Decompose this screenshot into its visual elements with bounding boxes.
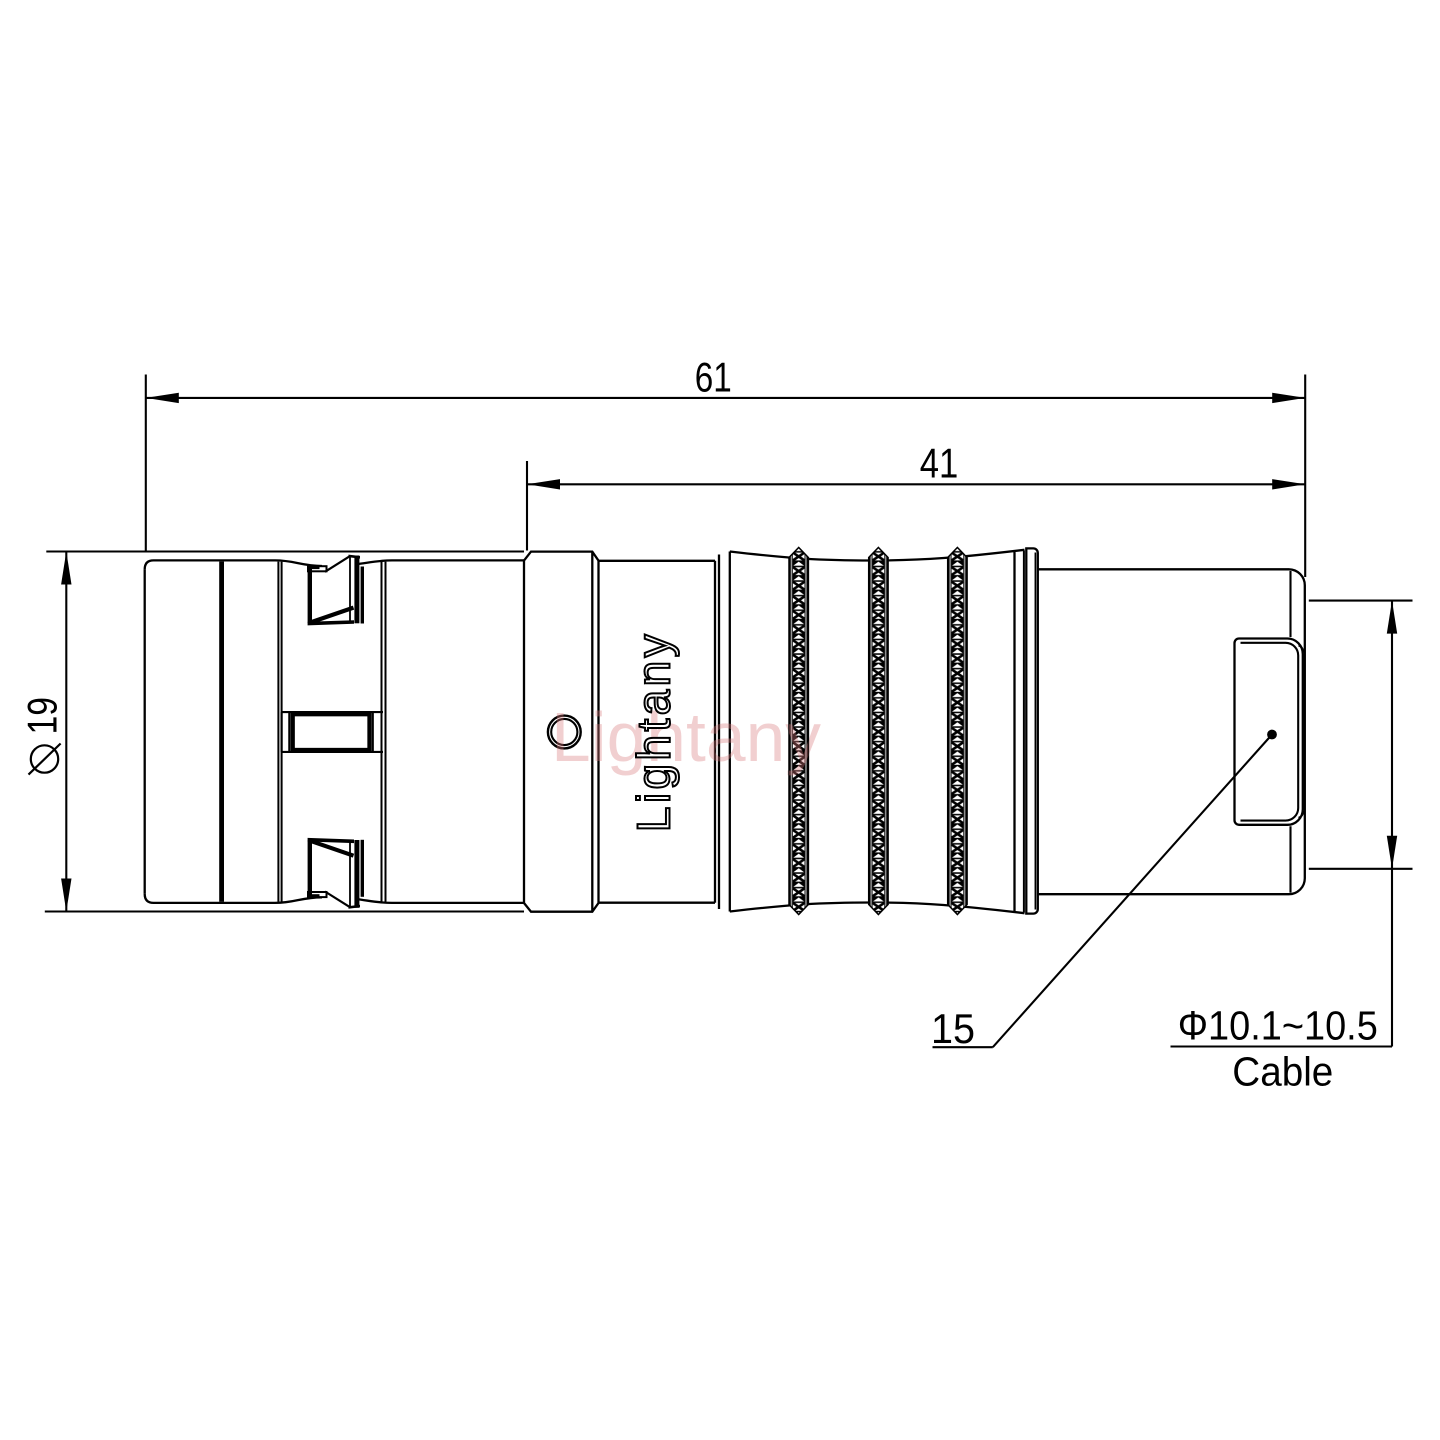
svg-text:15: 15 <box>931 1005 975 1052</box>
svg-text:19: 19 <box>18 697 65 735</box>
svg-text:61: 61 <box>695 354 732 401</box>
svg-text:Cable: Cable <box>1232 1049 1333 1095</box>
svg-text:Φ10.1~10.5: Φ10.1~10.5 <box>1178 1003 1378 1049</box>
svg-text:Lightany: Lightany <box>628 631 680 832</box>
svg-text:41: 41 <box>920 440 959 487</box>
svg-text:Lightany: Lightany <box>551 698 821 776</box>
